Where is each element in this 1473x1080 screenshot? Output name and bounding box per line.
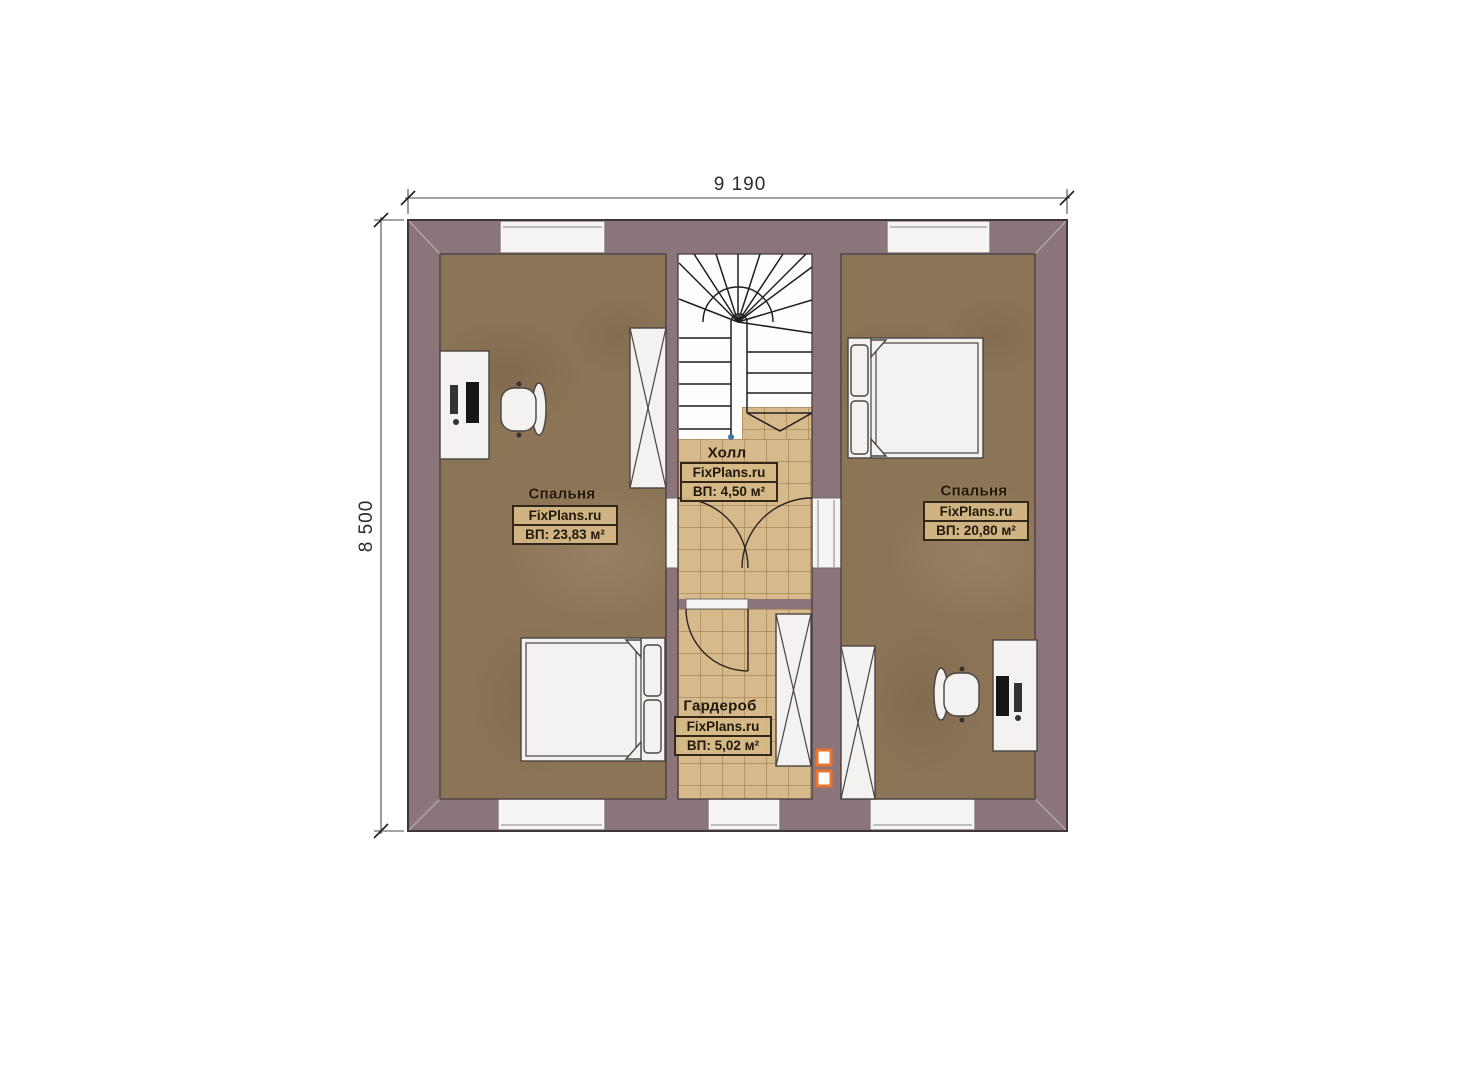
watermark-label: FixPlans.ru: [676, 718, 770, 735]
dimension-width-label: 9 190: [714, 174, 767, 196]
bedroom-left-title: Спальня: [529, 486, 596, 503]
dimension-height-label: 8 500: [356, 500, 378, 553]
bedroom-right-info-box: FixPlans.ru ВП: 20,80 м²: [923, 501, 1029, 541]
hall-floor-under-stairs: [742, 407, 812, 439]
wardrobe-info-box: FixPlans.ru ВП: 5,02 м²: [674, 716, 772, 756]
area-label: ВП: 20,80 м²: [925, 520, 1027, 539]
watermark-label: FixPlans.ru: [925, 503, 1027, 520]
wardrobe-title: Гардероб: [683, 698, 756, 715]
floor-plan-canvas: 9 190 8 500 Спальня FixPlans.ru ВП: 23,8…: [0, 0, 1473, 1080]
watermark-label: FixPlans.ru: [682, 464, 776, 481]
area-label: ВП: 23,83 м²: [514, 524, 616, 543]
hall-title: Холл: [708, 445, 747, 462]
watermark-label: FixPlans.ru: [514, 507, 616, 524]
hall-info-box: FixPlans.ru ВП: 4,50 м²: [680, 462, 778, 502]
area-label: ВП: 5,02 м²: [676, 735, 770, 754]
area-label: ВП: 4,50 м²: [682, 481, 776, 500]
bedroom-left-info-box: FixPlans.ru ВП: 23,83 м²: [512, 505, 618, 545]
bedroom-right-title: Спальня: [941, 483, 1008, 500]
